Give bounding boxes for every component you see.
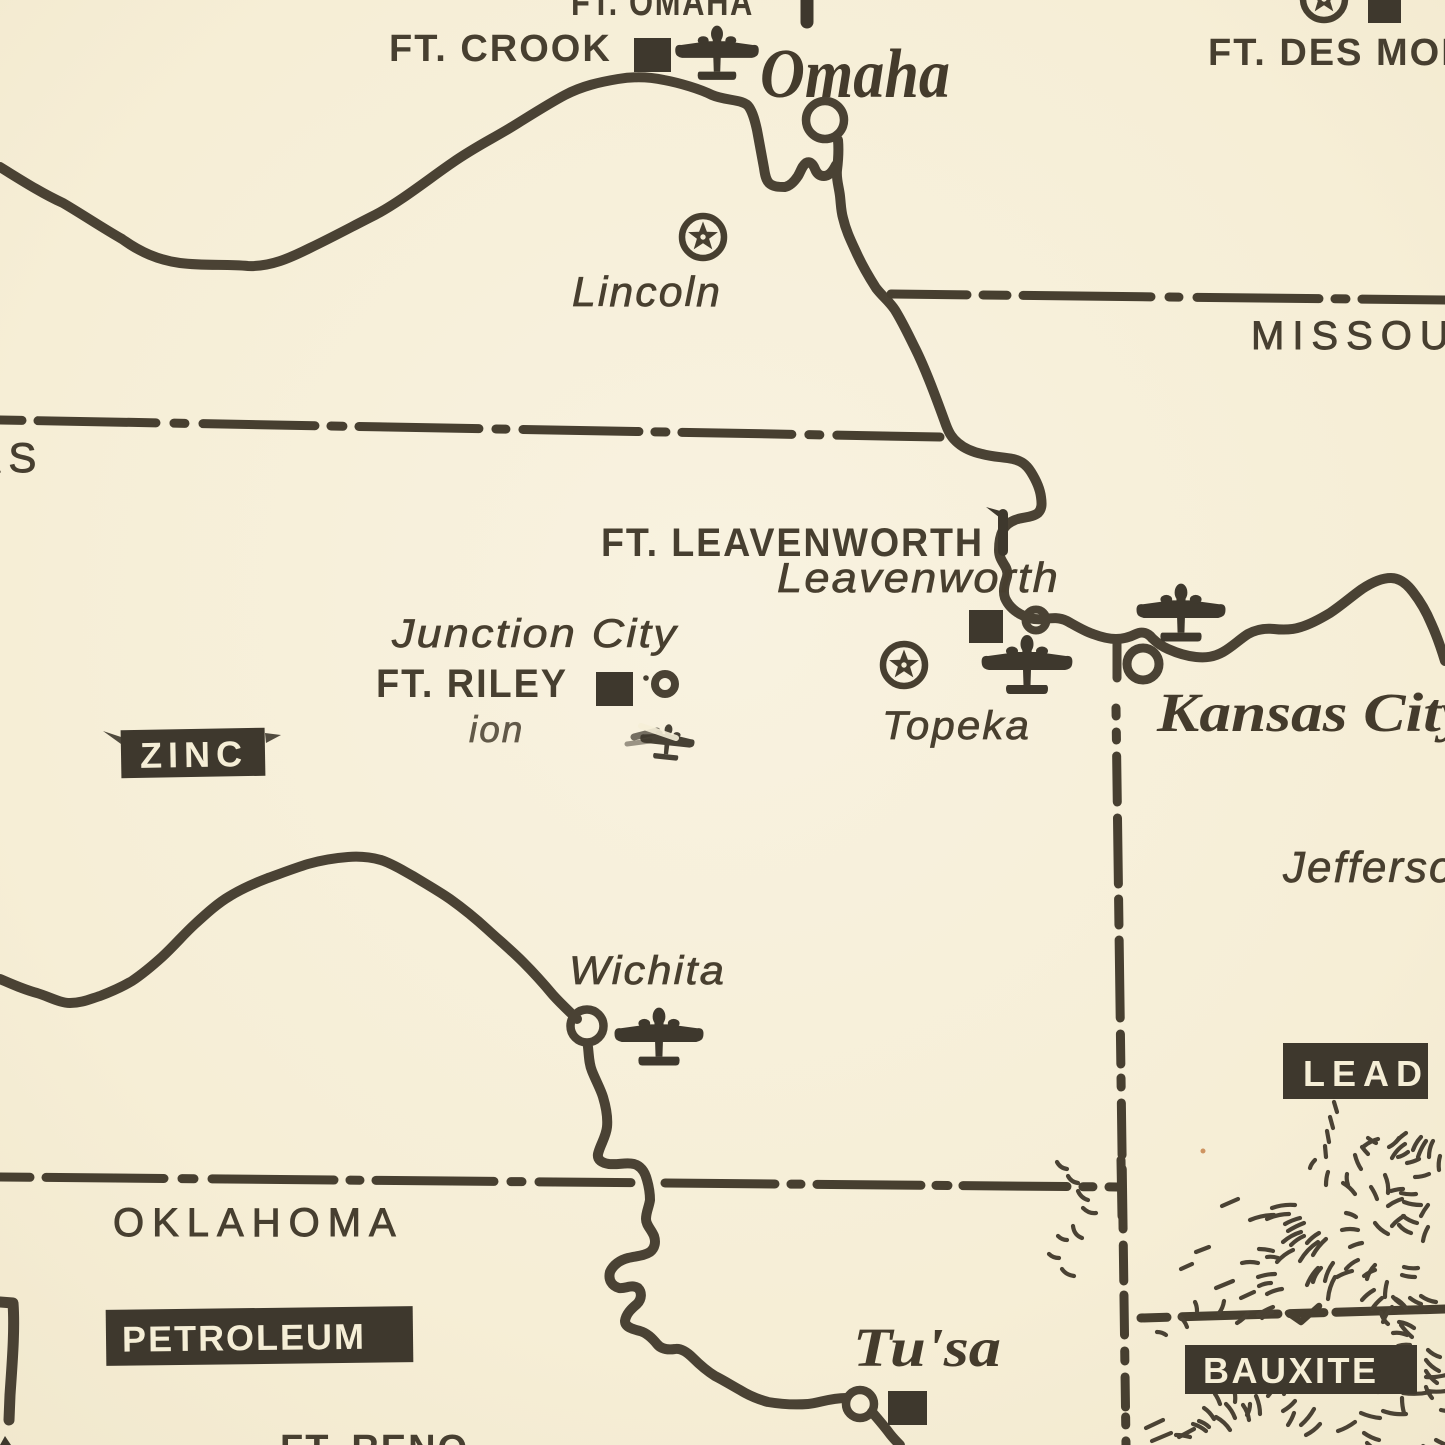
svg-text:Topeka: Topeka: [882, 704, 1031, 748]
svg-text:Tu'sa: Tu'sa: [853, 1317, 1001, 1378]
svg-text:FT. DES MOINES: FT. DES MOINES: [1208, 32, 1445, 74]
svg-text:LEAD: LEAD: [1303, 1053, 1429, 1094]
svg-text:Omaha: Omaha: [760, 36, 950, 113]
svg-text:Wichita: Wichita: [569, 949, 726, 993]
svg-text:PETROLEUM: PETROLEUM: [122, 1316, 366, 1360]
svg-text:KANSAS: KANSAS: [0, 434, 44, 481]
svg-text:Jefferson City: Jefferson City: [1282, 843, 1445, 892]
svg-text:FT. CROOK: FT. CROOK: [389, 28, 612, 70]
svg-text:OKLAHOMA: OKLAHOMA: [113, 1201, 404, 1245]
svg-text:Kansas City: Kansas City: [1156, 682, 1445, 743]
svg-text:FT. RILEY: FT. RILEY: [376, 662, 568, 706]
svg-text:MISSOURI: MISSOURI: [1251, 314, 1445, 358]
svg-text:Junction City: Junction City: [391, 612, 679, 656]
svg-text:Lincoln: Lincoln: [572, 268, 722, 315]
svg-text:FT. RENO: FT. RENO: [280, 1428, 469, 1445]
svg-text:FT. OMAHA: FT. OMAHA: [571, 0, 754, 24]
svg-text:BAUXITE: BAUXITE: [1203, 1350, 1379, 1391]
svg-text:Leavenworth: Leavenworth: [777, 554, 1060, 601]
svg-text:ion: ion: [469, 709, 524, 750]
svg-text:ZINC: ZINC: [140, 733, 249, 776]
